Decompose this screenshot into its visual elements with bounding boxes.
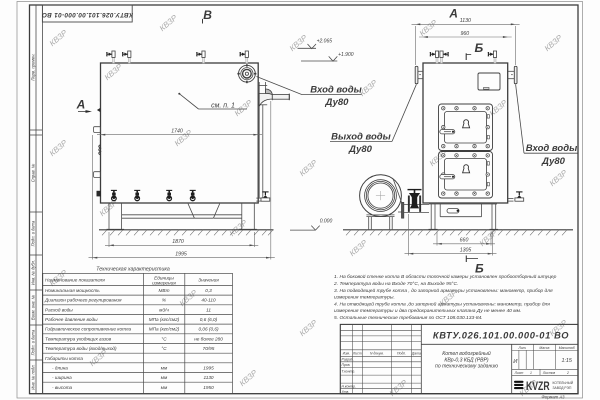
svg-text:°С: °С [161,346,167,351]
svg-text:- ширина: - ширина [52,375,72,380]
svg-text:- длина: - длина [52,366,68,371]
svg-text:70/95: 70/95 [203,346,215,351]
svg-text:А: А [76,97,86,111]
svg-text:м3/ч: м3/ч [159,307,169,312]
svg-text:Утв.: Утв. [342,390,350,394]
svg-text:МПа (кгс/см2): МПа (кгс/см2) [149,317,180,322]
svg-text:1. На боковой стенке котла В: 1. На боковой стенке котла В области топ… [334,273,557,280]
svg-text:Подп. и дата: Подп. и дата [31,329,36,355]
svg-text:А: А [448,6,458,20]
svg-text:Техническая характеристика: Техническая характеристика [96,267,170,273]
svg-text:960: 960 [460,31,469,37]
svg-text:1995: 1995 [175,252,187,258]
svg-text:N докум.: N докум. [370,352,384,356]
svg-text:Лит.: Лит. [518,346,527,350]
svg-text:Дата: Дата [411,352,421,356]
svg-text:Лист: Лист [514,371,524,375]
svg-text:Температура уходящих газов: Температура уходящих газов [45,336,112,341]
svg-text:МВт: МВт [159,288,170,293]
svg-text:5. Остальные технические треб: 5. Остальные технические требования по О… [334,315,483,321]
svg-text:Ду80: Ду80 [325,97,350,108]
svg-text:измерения температуры.: измерения температуры. [334,295,395,300]
svg-text:4. На отводящей трубе котла ,: 4. На отводящей трубе котла ,до запорной… [334,301,550,308]
svg-text:- высота: - высота [52,385,73,390]
svg-text:Расход воды: Расход воды [45,307,73,312]
svg-text:1130: 1130 [203,375,213,380]
svg-text:Ду80: Ду80 [541,156,566,167]
svg-text:1130: 1130 [460,18,471,24]
svg-text:KVZR: KVZR [526,379,550,393]
svg-text:Вход воды: Вход воды [310,84,361,95]
svg-text:В: В [203,8,212,22]
svg-text:Формат А3: Формат А3 [542,394,566,399]
svg-text:ЗАВОД РЭП: ЗАВОД РЭП [553,386,572,390]
svg-text:2: 2 [566,371,569,375]
svg-text:КВТУ.026.101.00.000-01 ВО: КВТУ.026.101.00.000-01 ВО [433,330,569,340]
svg-text:1305: 1305 [460,248,472,254]
svg-text:Б: Б [475,262,484,276]
svg-text:+1.900: +1.900 [338,52,354,58]
svg-text:Б: Б [474,41,483,55]
svg-text:2. Температура воды на Входе: 2. Температура воды на Входе 70°С, на Вы… [333,281,458,287]
svg-text:Масштаб: Масштаб [559,346,575,350]
svg-text:Изм.: Изм. [343,352,350,356]
svg-text:Вход воды: Вход воды [526,143,577,154]
svg-text:Котел водогрейный: Котел водогрейный [442,350,491,357]
svg-text:%: % [162,298,166,303]
svg-text:1: 1 [530,371,532,375]
svg-text:0,06 (0,6): 0,06 (0,6) [198,327,219,332]
svg-text:Подп. и дата: Подп. и дата [31,220,36,246]
svg-text:11: 11 [206,307,211,312]
svg-text:Инв. № дубл.: Инв. № дубл. [31,260,36,285]
svg-text:°С: °С [161,336,167,341]
svg-text:Т.контр.: Т.контр. [342,369,356,373]
svg-text:Разраб.: Разраб. [342,358,354,362]
svg-text:Диапазон рабочего регулировани: Диапазон рабочего регулирования [44,298,122,303]
svg-text:Пров.: Пров. [342,363,351,367]
svg-text:660: 660 [460,238,469,244]
svg-text:Лист: Лист [352,352,362,356]
svg-text:мм: мм [161,375,168,380]
svg-text:Габариты котла: Габариты котла [45,356,83,361]
svg-text:Наименование показателя: Наименование показателя [45,278,105,283]
svg-text:Н.контр.: Н.контр. [342,385,356,389]
svg-text:мм: мм [161,366,168,371]
svg-text:Значения: Значения [198,278,219,283]
svg-text:Выход воды: Выход воды [331,131,391,142]
svg-text:Номинальная мощность: Номинальная мощность [45,288,100,293]
svg-text:0,3: 0,3 [205,288,212,293]
svg-text:КОТЕЛЬНЫЙ: КОТЕЛЬНЫЙ [553,381,574,385]
svg-text:Справ. №: Справ. № [31,163,36,182]
svg-text:КВр-0,3 КБД (РВР): КВр-0,3 КБД (РВР) [444,357,489,363]
svg-text:Масса: Масса [539,346,549,350]
svg-text:по техническому заданию: по техническому заданию [435,364,498,370]
svg-text:1995: 1995 [203,366,214,371]
svg-text:Листов: Листов [542,371,556,375]
svg-text:Инв. № подл.: Инв. № подл. [31,364,36,389]
svg-text:Взам. инв. №: Взам. инв. № [31,294,36,320]
svg-text:Подп.: Подп. [397,352,406,356]
svg-text:МПа (кгс/см2): МПа (кгс/см2) [149,327,180,332]
svg-text:Температура воды (вход/выход): Температура воды (вход/выход) [45,346,117,351]
svg-text:Ду80: Ду80 [348,144,373,155]
svg-text:1:15: 1:15 [561,358,572,364]
svg-text:КВТУ.026.101.00.000-01 ВО: КВТУ.026.101.00.000-01 ВО [42,11,133,18]
svg-text:Гидравлическое сопротивление к: Гидравлическое сопротивление котла [45,327,132,332]
svg-text:0.000: 0.000 [320,219,333,225]
svg-text:40-110: 40-110 [201,298,216,303]
svg-text:1870: 1870 [172,239,184,245]
svg-text:Рабочее давление воды: Рабочее давление воды [45,317,98,322]
svg-text:1950: 1950 [203,385,214,390]
svg-text:3. На подводящей трубе котла: 3. На подводящей трубе котла , до запорн… [334,287,553,294]
svg-text:см. п. 1: см. п. 1 [211,102,235,109]
svg-text:+2.065: +2.065 [317,39,333,45]
svg-text:мм: мм [161,385,168,390]
svg-text:измерения температуры и два пр: измерения температуры и два предохраните… [334,308,521,314]
svg-text:измерения: измерения [152,280,176,285]
svg-text:не более 280: не более 280 [194,336,223,341]
svg-text:1740: 1740 [171,129,183,135]
svg-text:0,6 (6,0): 0,6 (6,0) [200,317,218,322]
svg-text:Перв. примен.: Перв. примен. [31,53,36,80]
